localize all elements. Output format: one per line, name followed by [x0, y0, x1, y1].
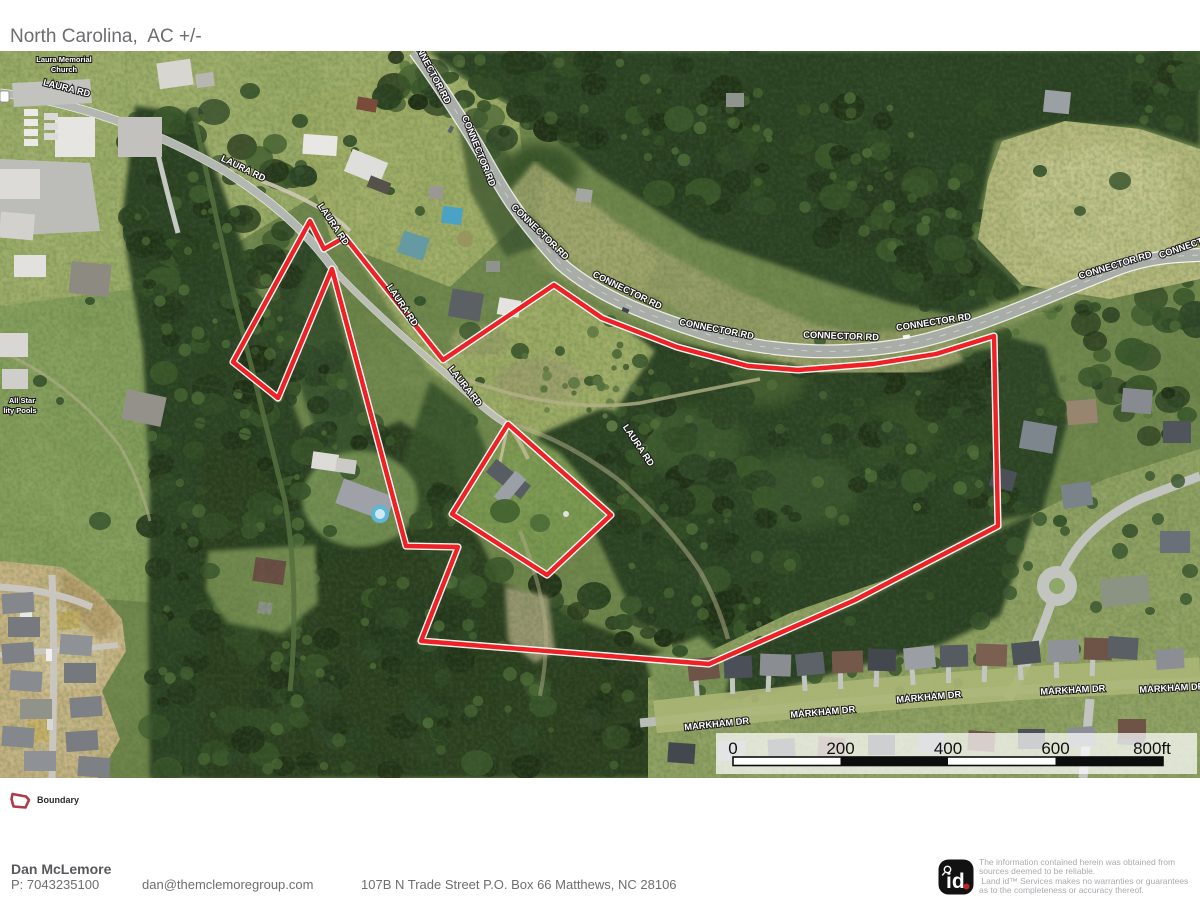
svg-text:lity Pools: lity Pools: [3, 406, 36, 415]
svg-text:200: 200: [826, 739, 854, 758]
svg-text:All Star: All Star: [9, 396, 35, 405]
svg-text:600: 600: [1041, 739, 1069, 758]
svg-text:400: 400: [934, 739, 962, 758]
svg-text:0: 0: [728, 739, 737, 758]
svg-text:id: id: [946, 870, 965, 893]
svg-text:800ft: 800ft: [1133, 739, 1171, 758]
svg-text:Church: Church: [51, 65, 78, 74]
svg-text:Laura Memorial: Laura Memorial: [36, 55, 91, 64]
